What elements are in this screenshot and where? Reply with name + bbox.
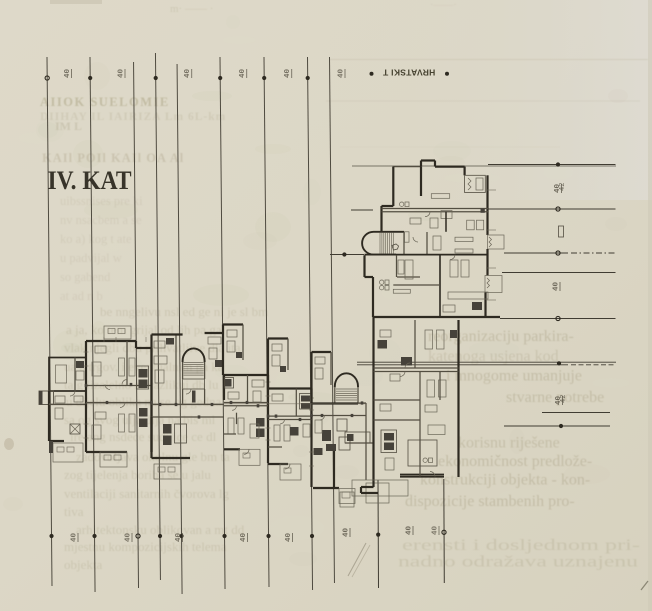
svg-text:42: 42 — [559, 183, 567, 191]
svg-text:KAIl POIl KAIl OA Al: KAIl POIl KAIl OA Al — [42, 151, 184, 165]
svg-text:uibssnises pre ki: uibssnises pre ki — [60, 194, 143, 208]
svg-text:40: 40 — [240, 532, 248, 542]
svg-text:korisnu riješene: korisnu riješene — [458, 435, 560, 452]
svg-text:i mnogome umanjuje: i mnogome umanjuje — [446, 368, 582, 385]
svg-text:konstrukciji objekta - kon-: konstrukciji objekta - kon- — [420, 472, 590, 489]
svg-text:m· —— ·: m· —— · — [170, 3, 213, 15]
svg-text:objekta: objekta — [64, 557, 102, 572]
svg-text:40: 40 — [343, 527, 351, 537]
svg-text:40: 40 — [432, 525, 440, 535]
svg-text:HRVATSKI T: HRVATSKI T — [382, 68, 435, 78]
svg-text:40: 40 — [406, 525, 414, 535]
svg-text:40: 40 — [118, 68, 126, 78]
svg-text:40: 40 — [284, 68, 292, 78]
svg-text:ekonomičnost predlože-: ekonomičnost predlože- — [438, 453, 592, 470]
svg-text:tiva: tiva — [64, 504, 84, 519]
svg-text:40: 40 — [125, 532, 133, 542]
svg-text:40: 40 — [64, 68, 72, 78]
svg-text:40: 40 — [285, 532, 293, 542]
svg-text:dispozicije stambenih pro-: dispozicije stambenih pro- — [405, 493, 575, 510]
svg-text:erensti i dosljednom pri-: erensti i dosljednom pri- — [402, 537, 640, 554]
svg-text:42: 42 — [560, 395, 568, 403]
svg-text:40: 40 — [553, 281, 561, 291]
svg-text:IV. KAT: IV. KAT — [48, 165, 132, 195]
svg-text:AIIOK SUELOMIE: AIIOK SUELOMIE — [40, 95, 170, 109]
svg-text:nadno odražava uznajenu: nadno odražava uznajenu — [398, 554, 638, 571]
svg-text:40: 40 — [239, 68, 247, 78]
svg-text:be nngelivu nsl ed ge ni je: be nngelivu nsl ed ge ni je sl bm — [100, 304, 268, 319]
svg-text:IM L: IM L — [55, 119, 82, 133]
svg-text:·——·: ·——· — [430, 0, 457, 11]
svg-text:so gabend: so gabend — [60, 270, 111, 284]
svg-text:nv nsacbem a se: nv nsacbem a se — [60, 213, 142, 227]
svg-text:u padvijal w: u padvijal w — [60, 251, 122, 265]
svg-text:a ja, ko tem grijal od lih p: a ja, ko tem grijal od lih pa gal — [66, 322, 226, 337]
svg-text:at ad n b: at ad n b — [60, 289, 103, 303]
svg-text:reorganizaciju parkira-: reorganizaciju parkira- — [428, 328, 574, 345]
svg-text:u dijelu oblika na se og g: u dijelu oblika na se og gedna — [66, 394, 221, 409]
svg-text:mjestnu kompozicijskih telem: mjestnu kompozicijskih telema — [64, 539, 227, 554]
svg-text:40: 40 — [184, 68, 192, 78]
svg-text:ko a) kog t ate: ko a) kog t ate — [60, 232, 132, 246]
svg-text:ventilaciji sanitarnih čvorov: ventilaciji sanitarnih čvorova lg — [64, 486, 229, 501]
svg-text:40: 40 — [175, 532, 183, 542]
svg-text:40: 40 — [338, 68, 346, 78]
svg-text:40: 40 — [71, 532, 79, 542]
